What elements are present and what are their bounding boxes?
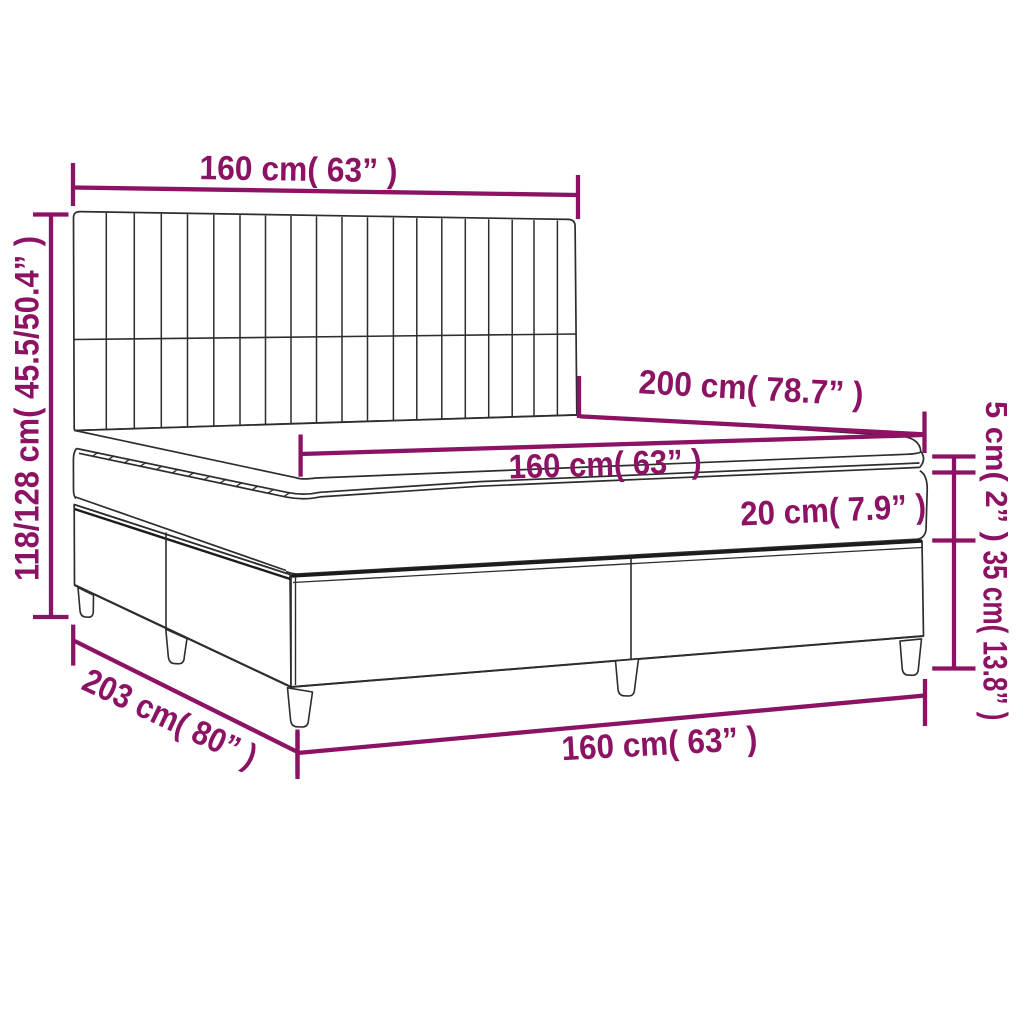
svg-text:20 cm( 7.9” ): 20 cm( 7.9” ): [739, 487, 926, 533]
svg-text:160 cm( 63” ): 160 cm( 63” ): [508, 442, 702, 486]
svg-text:35 cm( 13.8” ): 35 cm( 13.8” ): [976, 551, 1014, 721]
svg-text:5 cm( 2” ): 5 cm( 2” ): [979, 401, 1014, 542]
svg-text:160 cm( 63” ): 160 cm( 63” ): [199, 149, 398, 190]
svg-text:118/128 cm( 45.5/50.4” ): 118/128 cm( 45.5/50.4” ): [8, 236, 46, 581]
